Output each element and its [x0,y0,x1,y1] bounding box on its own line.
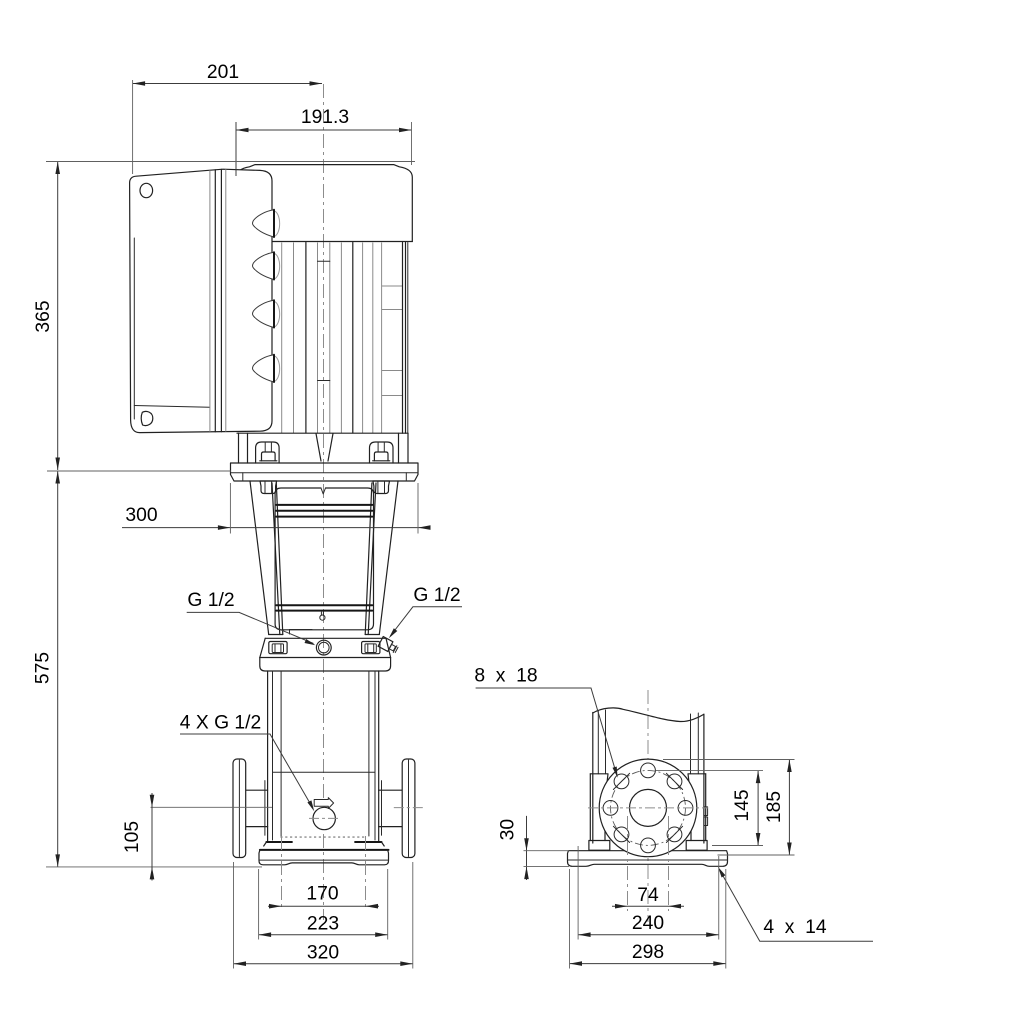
svg-text:8 x 18: 8 x 18 [474,666,537,687]
svg-text:298: 298 [632,942,664,963]
svg-text:4 x 14: 4 x 14 [763,917,827,938]
svg-text:575: 575 [33,652,54,684]
svg-text:191.3: 191.3 [301,107,349,128]
svg-text:201: 201 [207,62,239,83]
svg-text:365: 365 [33,300,54,332]
svg-text:240: 240 [632,913,664,934]
svg-text:145: 145 [732,789,753,821]
svg-text:4 X G 1/2: 4 X G 1/2 [180,713,261,734]
svg-text:300: 300 [125,505,157,526]
svg-text:105: 105 [122,821,143,853]
svg-text:G 1/2: G 1/2 [187,590,234,611]
svg-text:G 1/2: G 1/2 [413,585,460,606]
svg-text:30: 30 [498,819,519,840]
svg-text:223: 223 [307,914,339,935]
svg-text:185: 185 [764,791,785,823]
svg-text:320: 320 [307,943,339,964]
svg-text:170: 170 [306,884,338,905]
svg-text:74: 74 [637,885,659,906]
